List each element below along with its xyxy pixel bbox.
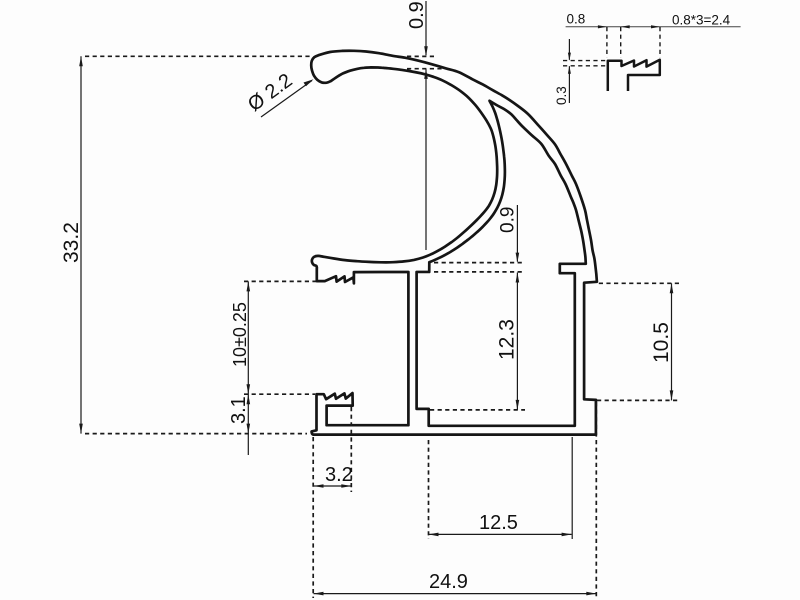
svg-text:3.1: 3.1 xyxy=(228,396,250,424)
svg-text:10±0.25: 10±0.25 xyxy=(230,302,250,367)
svg-text:33.2: 33.2 xyxy=(60,222,83,263)
svg-text:12.3: 12.3 xyxy=(496,319,519,360)
svg-text:24.9: 24.9 xyxy=(429,571,468,593)
svg-text:10.5: 10.5 xyxy=(650,322,673,363)
svg-text:3.2: 3.2 xyxy=(325,464,353,486)
svg-text:0.8: 0.8 xyxy=(567,12,586,27)
svg-text:12.5: 12.5 xyxy=(479,512,518,534)
svg-text:0.9: 0.9 xyxy=(498,207,519,233)
svg-text:0.9: 0.9 xyxy=(406,1,428,29)
svg-text:0.8*3=2.4: 0.8*3=2.4 xyxy=(672,13,731,28)
svg-text:0.3: 0.3 xyxy=(554,86,569,105)
